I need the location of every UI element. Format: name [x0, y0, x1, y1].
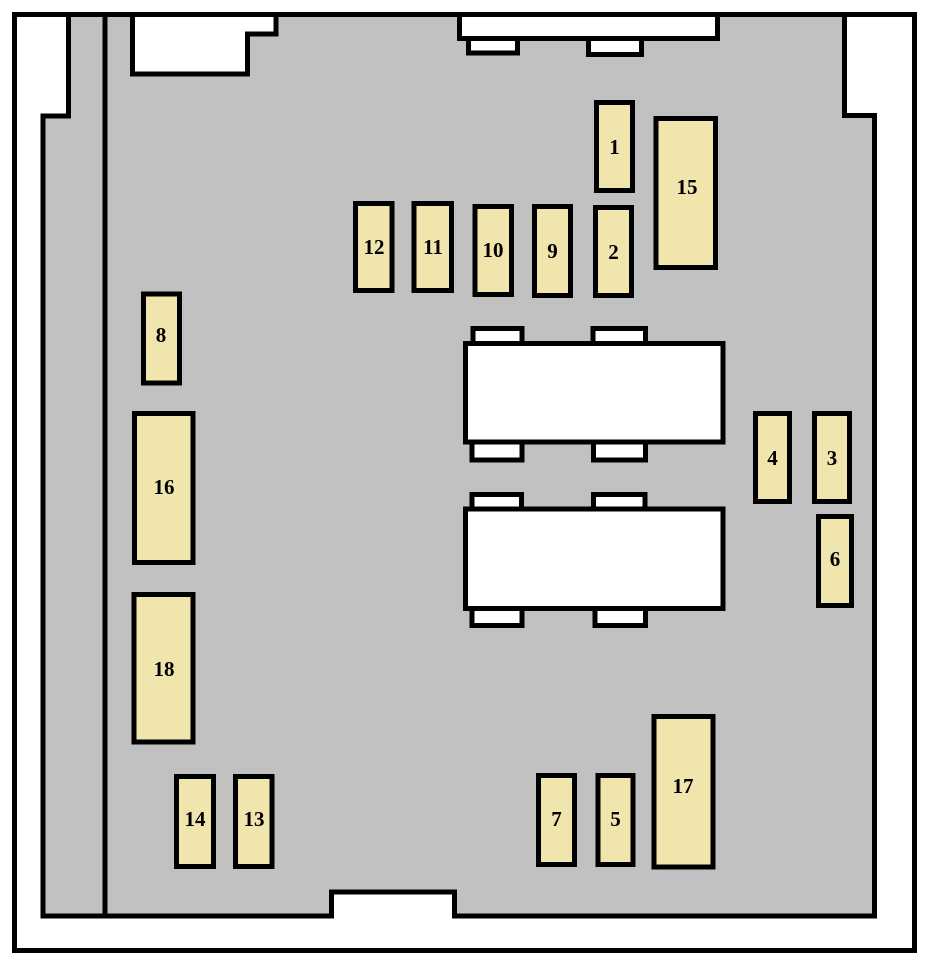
- svg-text:4: 4: [767, 446, 778, 470]
- svg-text:15: 15: [677, 175, 698, 199]
- svg-text:11: 11: [423, 235, 443, 259]
- svg-text:2: 2: [608, 240, 619, 264]
- svg-text:18: 18: [154, 657, 175, 681]
- svg-text:14: 14: [185, 807, 207, 831]
- svg-text:8: 8: [156, 323, 167, 347]
- svg-text:10: 10: [483, 238, 504, 262]
- svg-text:17: 17: [673, 774, 694, 798]
- svg-text:6: 6: [830, 547, 841, 571]
- svg-text:16: 16: [154, 475, 175, 499]
- svg-text:12: 12: [364, 235, 385, 259]
- svg-text:5: 5: [610, 807, 621, 831]
- svg-text:7: 7: [551, 807, 562, 831]
- svg-text:9: 9: [547, 239, 558, 263]
- svg-text:13: 13: [244, 807, 265, 831]
- svg-text:3: 3: [827, 446, 838, 470]
- svg-text:1: 1: [609, 135, 620, 159]
